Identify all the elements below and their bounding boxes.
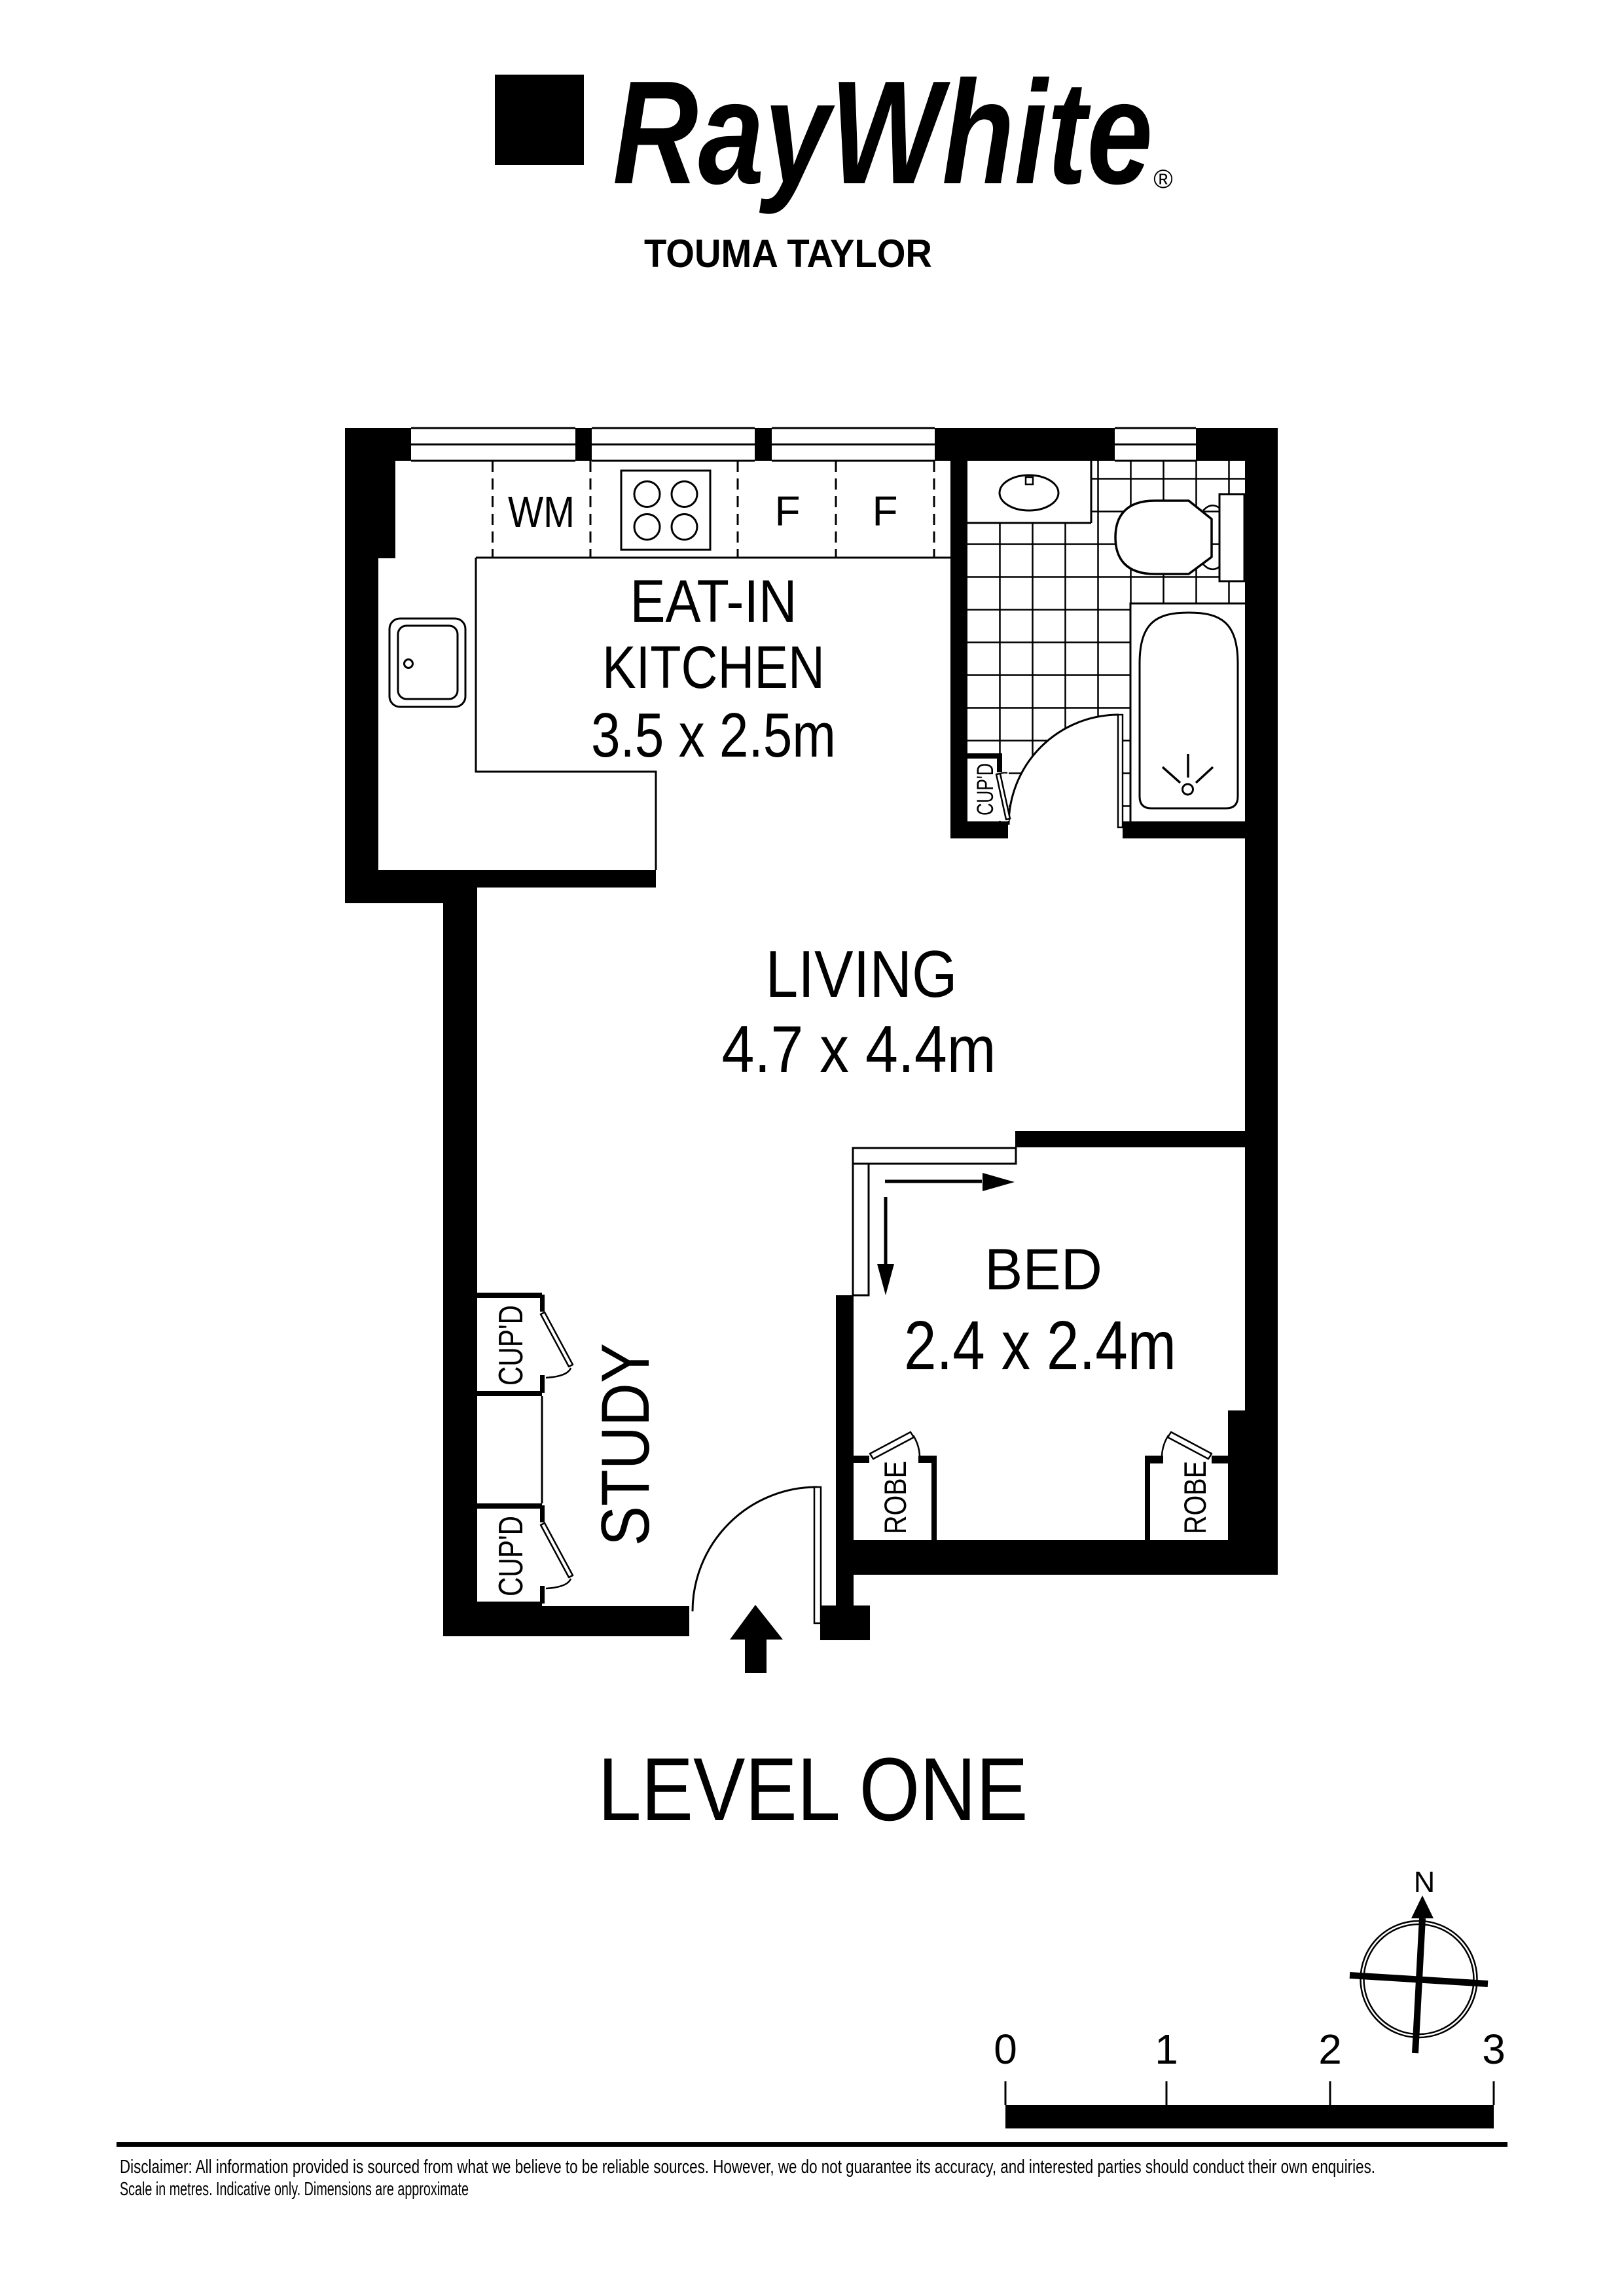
svg-text:RayWhite: RayWhite	[613, 50, 1153, 215]
svg-text:CUP'D: CUP'D	[492, 1305, 530, 1386]
svg-text:2.4 x 2.4m: 2.4 x 2.4m	[904, 1307, 1176, 1384]
svg-text:EAT-IN: EAT-IN	[630, 568, 797, 635]
svg-text:ROBE: ROBE	[878, 1461, 912, 1534]
svg-text:0: 0	[994, 2026, 1017, 2073]
svg-text:1: 1	[1155, 2026, 1178, 2073]
svg-text:LEVEL ONE: LEVEL ONE	[598, 1740, 1028, 1840]
svg-text:3: 3	[1482, 2026, 1506, 2073]
svg-text:CUP'D: CUP'D	[973, 763, 998, 816]
svg-text:LIVING: LIVING	[766, 938, 958, 1011]
svg-text:3.5 x 2.5m: 3.5 x 2.5m	[591, 700, 836, 770]
svg-text:WM: WM	[508, 488, 575, 537]
svg-text:CUP'D: CUP'D	[492, 1516, 530, 1596]
svg-text:ROBE: ROBE	[1178, 1461, 1212, 1534]
svg-text:4.7 x 4.4m: 4.7 x 4.4m	[722, 1013, 996, 1086]
svg-text:N: N	[1414, 1865, 1435, 1899]
svg-text:F: F	[872, 488, 897, 535]
svg-text:®: ®	[1153, 165, 1172, 194]
svg-text:BED: BED	[984, 1236, 1102, 1302]
svg-text:Disclaimer: All information pr: Disclaimer: All information provided is …	[120, 2157, 1375, 2178]
svg-text:KITCHEN: KITCHEN	[602, 634, 825, 701]
svg-text:2: 2	[1318, 2026, 1342, 2073]
svg-text:Scale in metres. Indicative on: Scale in metres. Indicative only. Dimens…	[120, 2179, 469, 2200]
svg-text:F: F	[774, 488, 800, 535]
svg-text:STUDY: STUDY	[588, 1343, 664, 1546]
svg-text:TOUMA TAYLOR: TOUMA TAYLOR	[644, 232, 932, 276]
